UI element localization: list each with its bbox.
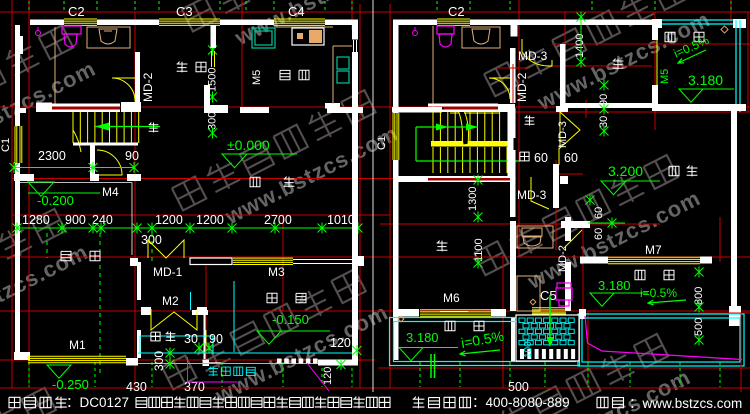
svg-text:：DC0127: ：DC0127 [66, 395, 129, 410]
svg-text:60: 60 [564, 151, 578, 165]
svg-text:3.180: 3.180 [406, 330, 439, 345]
svg-text:1200: 1200 [196, 213, 224, 227]
svg-text:M5: M5 [251, 70, 263, 85]
svg-text:M6: M6 [443, 291, 460, 305]
svg-text:C1: C1 [376, 136, 388, 150]
svg-text:M5: M5 [659, 69, 671, 84]
svg-text:430: 430 [126, 380, 147, 394]
svg-text:2300: 2300 [38, 149, 66, 163]
svg-text:30: 30 [184, 332, 198, 346]
svg-text:1010: 1010 [327, 213, 355, 227]
svg-text:-0.250: -0.250 [52, 377, 89, 392]
svg-text:1300: 1300 [467, 187, 479, 211]
svg-text:300: 300 [152, 351, 166, 371]
svg-text:M4: M4 [102, 185, 119, 199]
svg-text:240: 240 [92, 213, 113, 227]
svg-text:：www.bstzcs.com: ：www.bstzcs.com [629, 396, 742, 411]
svg-text:i=0.5%: i=0.5% [640, 286, 677, 300]
svg-text:60: 60 [534, 151, 548, 165]
svg-text:±0.000: ±0.000 [227, 137, 270, 153]
svg-text:-0.200: -0.200 [37, 193, 74, 208]
svg-text:300: 300 [141, 233, 162, 247]
svg-text:500: 500 [508, 380, 529, 394]
svg-text:M1: M1 [69, 338, 86, 352]
svg-text:MD-2: MD-2 [141, 72, 155, 102]
svg-text:1280: 1280 [22, 213, 50, 227]
svg-text:C1: C1 [0, 138, 12, 152]
svg-text:900: 900 [65, 213, 86, 227]
svg-text:120: 120 [330, 336, 351, 350]
svg-text:120: 120 [322, 367, 334, 385]
svg-text:1100: 1100 [473, 238, 485, 262]
svg-text:MD-3: MD-3 [518, 49, 548, 63]
svg-text:M3: M3 [268, 265, 285, 279]
svg-text:M2: M2 [162, 294, 179, 308]
svg-text:：400-8080-889: ：400-8080-889 [472, 395, 570, 410]
svg-text:100: 100 [523, 341, 534, 358]
svg-text:1200: 1200 [155, 213, 183, 227]
svg-text:MD-2: MD-2 [557, 245, 569, 272]
svg-text:3.180: 3.180 [688, 72, 723, 88]
svg-text:-0.150: -0.150 [272, 312, 309, 327]
svg-text:M7: M7 [645, 243, 662, 257]
svg-text:3.180: 3.180 [598, 278, 631, 293]
svg-text:90: 90 [125, 149, 139, 163]
svg-text:C2: C2 [68, 4, 85, 19]
svg-text:C3: C3 [176, 4, 193, 19]
svg-text:MD-2: MD-2 [515, 72, 529, 102]
svg-text:60: 60 [593, 228, 605, 240]
svg-text:MD-3: MD-3 [517, 188, 547, 202]
svg-text:1400: 1400 [574, 34, 586, 58]
svg-text:C5: C5 [540, 288, 557, 303]
svg-text:MD-3: MD-3 [557, 121, 569, 148]
svg-text:MD-1: MD-1 [153, 265, 183, 279]
svg-text:300: 300 [207, 112, 219, 130]
svg-text:90: 90 [209, 332, 223, 346]
svg-text:500: 500 [693, 318, 705, 336]
svg-text:3.200: 3.200 [608, 163, 643, 179]
svg-text:C4: C4 [288, 4, 305, 19]
svg-text:C2: C2 [448, 4, 465, 19]
svg-text:60: 60 [593, 207, 605, 219]
